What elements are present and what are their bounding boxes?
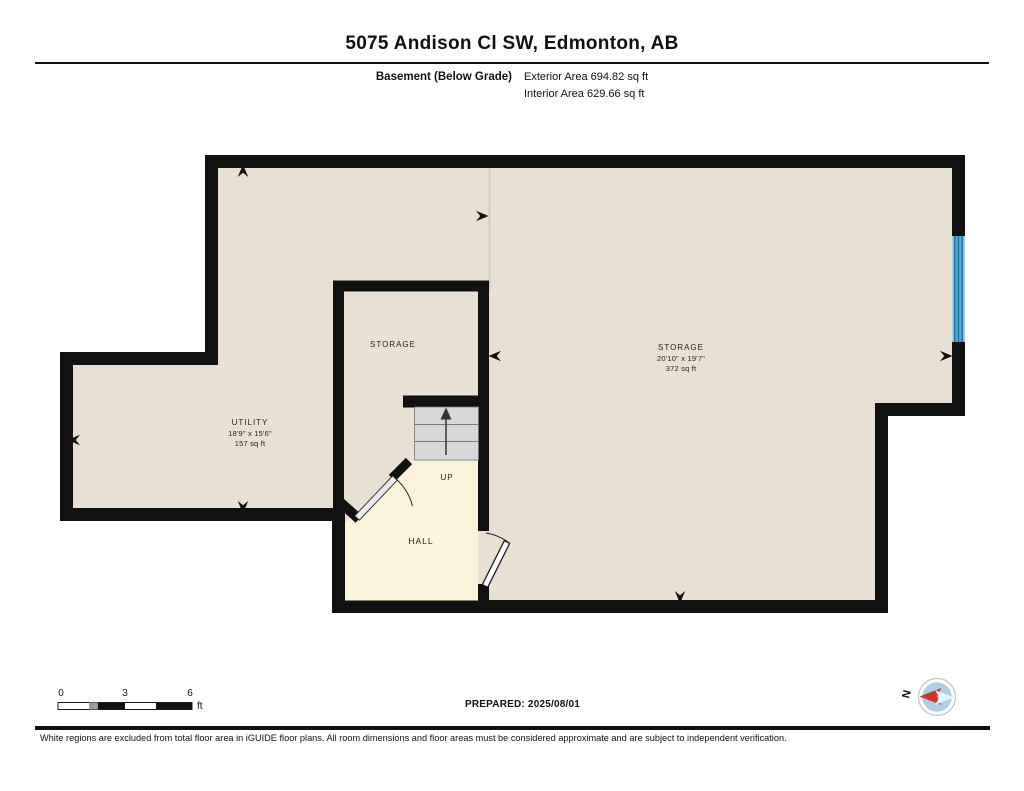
room-area: 372 sq ft [657, 364, 705, 375]
room-label-storage-large: STORAGE 20'10" x 19'7" 372 sq ft [657, 343, 705, 375]
prepared-date: PREPARED: 2025/08/01 [465, 699, 580, 710]
staircase [415, 407, 479, 460]
room-dimensions: 20'10" x 19'7" [657, 354, 705, 365]
floorplan-svg: N [0, 0, 1024, 791]
window-icon [952, 236, 965, 342]
compass-north-label: N [900, 689, 914, 700]
room-name: UTILITY [228, 418, 272, 429]
room-label-storage-small: STORAGE [370, 340, 416, 349]
scale-bar [58, 703, 192, 710]
exterior-walls [67, 162, 959, 607]
room-label-hall: HALL [408, 536, 433, 546]
scale-unit-label: ft [197, 701, 203, 712]
scale-tick-3: 3 [122, 688, 128, 699]
room-label-utility: UTILITY 18'9" x 15'6" 157 sq ft [228, 418, 272, 450]
scale-tick-6: 6 [187, 688, 193, 699]
room-name: STORAGE [657, 343, 705, 354]
disclaimer-text: White regions are excluded from total fl… [40, 733, 1000, 743]
scale-tick-0: 0 [58, 688, 64, 699]
room-dimensions: 18'9" x 15'6" [228, 429, 272, 440]
stairs-up-label: UP [440, 473, 453, 482]
footer-divider [35, 726, 990, 730]
compass-icon: N [900, 679, 955, 716]
room-area: 157 sq ft [228, 439, 272, 450]
floorplan-page: 5075 Andison Cl SW, Edmonton, AB Basemen… [0, 0, 1024, 791]
